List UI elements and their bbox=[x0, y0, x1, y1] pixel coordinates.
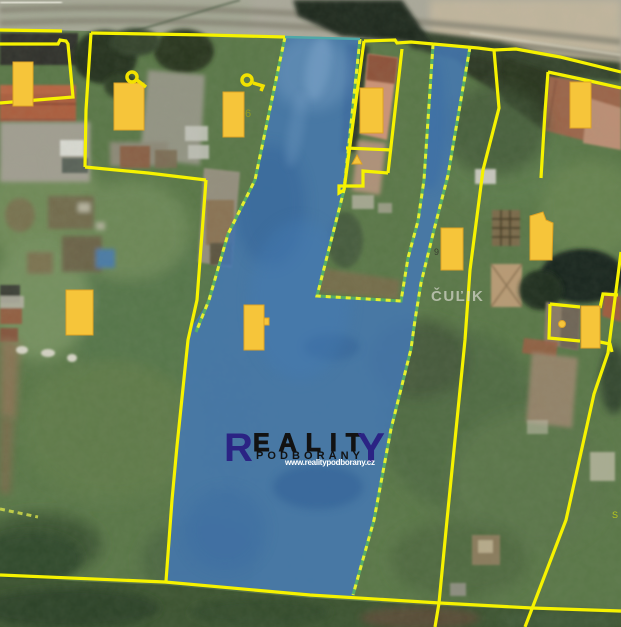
svg-text:9: 9 bbox=[434, 247, 439, 257]
svg-text:R: R bbox=[224, 426, 253, 470]
svg-text:S: S bbox=[612, 510, 618, 520]
svg-text:ČUĽIK: ČUĽIK bbox=[431, 287, 484, 305]
svg-text:6: 6 bbox=[245, 108, 251, 120]
svg-text:www.realitypodborany.cz: www.realitypodborany.cz bbox=[284, 458, 375, 467]
